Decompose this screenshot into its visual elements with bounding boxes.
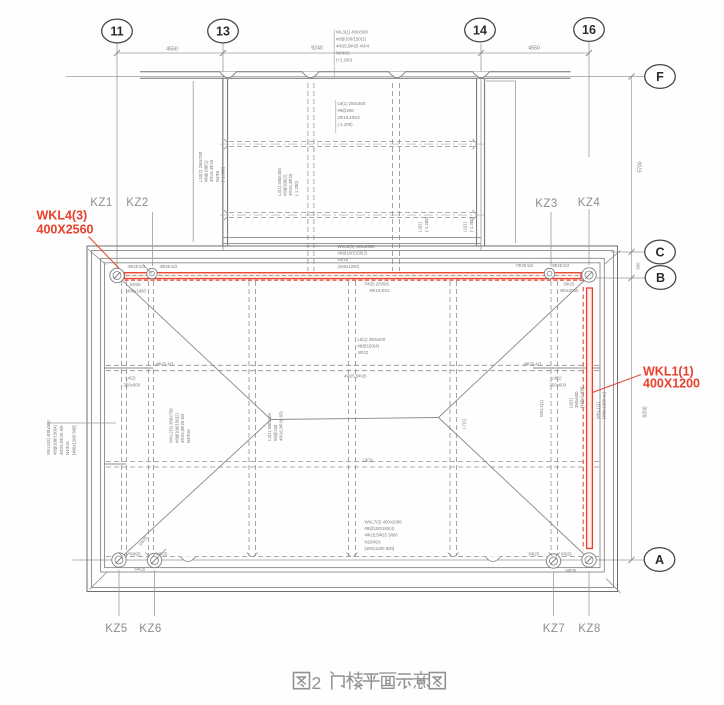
svg-text:16: 16 xyxy=(582,23,596,37)
svg-text:2Φ16,4Φ22: 2Φ16,4Φ22 xyxy=(338,115,361,120)
svg-text:3Φ25 5/2: 3Φ25 5/2 xyxy=(160,264,178,269)
svg-text:4Φ25: 4Φ25 xyxy=(157,552,168,557)
svg-text:N16Φ16: N16Φ16 xyxy=(365,539,382,544)
svg-text:F: F xyxy=(656,70,664,84)
svg-text:11: 11 xyxy=(110,25,123,39)
svg-text:WKL5(3) 400x500: WKL5(3) 400x500 xyxy=(46,420,51,455)
svg-text:KZ1: KZ1 xyxy=(90,197,113,209)
svg-text:L4(1): L4(1) xyxy=(552,376,563,381)
svg-text:4550: 4550 xyxy=(166,47,178,53)
svg-text:(+2.200): (+2.200) xyxy=(336,58,353,63)
svg-text:L10(2) 250x700: L10(2) 250x700 xyxy=(198,151,203,182)
svg-text:4Φ25 5/2: 4Φ25 5/2 xyxy=(552,263,570,268)
svg-text:4Φ25;3Φ25 5/5: 4Φ25;3Φ25 5/5 xyxy=(180,413,185,443)
svg-text:WKL1(1): WKL1(1) xyxy=(596,401,601,419)
svg-text:[400x1200]: [400x1200] xyxy=(580,387,585,408)
svg-text:350x600: 350x600 xyxy=(550,383,567,388)
svg-text:400X2560: 400X2560 xyxy=(37,223,94,237)
svg-text:5Φ25: 5Φ25 xyxy=(130,282,141,287)
svg-text:L8(1): L8(1) xyxy=(569,397,574,408)
svg-text:6Φ25: 6Φ25 xyxy=(529,552,540,557)
svg-text:#8@150: #8@150 xyxy=(273,424,278,441)
svg-text:#8@100/150(2): #8@100/150(2) xyxy=(336,37,366,42)
svg-text:900: 900 xyxy=(636,262,641,270)
svg-text:C: C xyxy=(655,246,664,260)
svg-text:5700: 5700 xyxy=(638,161,644,172)
svg-text:L9(1): L9(1) xyxy=(463,221,468,232)
svg-text:#8@100(2): #8@100(2) xyxy=(283,174,288,196)
svg-text:WKL6(3) 400x2560: WKL6(3) 400x2560 xyxy=(338,244,376,249)
svg-text:6Φ25: 6Φ25 xyxy=(561,552,572,557)
svg-text:7Φ25 2/5/6/6: 7Φ25 2/5/6/6 xyxy=(364,282,390,287)
svg-text:4Φ25,5Φ25: 4Φ25,5Φ25 xyxy=(344,374,367,379)
svg-text:KZ5: KZ5 xyxy=(105,623,128,635)
svg-text:L4(2): L4(2) xyxy=(126,376,137,381)
svg-text:(-1.300): (-1.300) xyxy=(220,166,225,182)
svg-text:KZ2: KZ2 xyxy=(126,197,149,209)
svg-text:WKL4(3): WKL4(3) xyxy=(37,209,88,223)
svg-text:9240: 9240 xyxy=(311,46,323,52)
svg-text:8Φ16,Φ12: 8Φ16,Φ12 xyxy=(370,288,391,293)
svg-text:#8@100/150(4): #8@100/150(4) xyxy=(52,425,57,455)
svg-text:L5(2): L5(2) xyxy=(363,458,374,463)
svg-text:(-1.200): (-1.200) xyxy=(338,122,354,127)
svg-text:WKL2(3) 350x750: WKL2(3) 350x750 xyxy=(169,408,174,443)
svg-text:N4Φ16: N4Φ16 xyxy=(186,429,191,443)
svg-text:A: A xyxy=(655,553,664,567)
svg-text:L3(1) 250x400: L3(1) 250x400 xyxy=(277,168,282,196)
svg-text:KZ6: KZ6 xyxy=(139,623,162,635)
svg-text:350x600: 350x600 xyxy=(574,391,579,408)
svg-text:4Φ25,5Φ25 4/4/4: 4Φ25,5Φ25 4/4/4 xyxy=(336,44,370,49)
svg-text:L7(1): L7(1) xyxy=(462,418,467,429)
svg-text:5Φ25: 5Φ25 xyxy=(564,282,575,287)
svg-text:400x2060: 400x2060 xyxy=(560,288,579,293)
svg-text:4Φ22: 4Φ22 xyxy=(358,350,369,355)
svg-text:400X1200: 400X1200 xyxy=(643,377,700,391)
svg-text:L6(1) 250x400: L6(1) 250x400 xyxy=(338,101,366,106)
svg-text:400x1860: 400x1860 xyxy=(127,289,146,294)
svg-text:9200: 9200 xyxy=(643,406,649,417)
svg-text:[400x1200 500]: [400x1200 500] xyxy=(72,425,77,455)
svg-text:[400x1200 xx]: [400x1200 xx] xyxy=(602,392,607,419)
svg-text:7Φ25 5/2: 7Φ25 5/2 xyxy=(516,263,534,268)
svg-text:14: 14 xyxy=(473,24,487,38)
svg-text:KZ4: KZ4 xyxy=(578,197,601,209)
svg-text:2: 2 xyxy=(312,673,322,693)
svg-text:N4Φ16: N4Φ16 xyxy=(65,441,70,455)
svg-text:#8@100/150(2): #8@100/150(2) xyxy=(174,413,179,443)
svg-text:4Φ25 4/2: 4Φ25 4/2 xyxy=(156,362,174,367)
svg-text:L5(1) 250x200: L5(1) 250x200 xyxy=(358,337,386,342)
svg-text:4Φ20 4/2: 4Φ20 4/2 xyxy=(524,362,542,367)
svg-text:#8@100/150(2): #8@100/150(2) xyxy=(338,251,368,256)
svg-text:350x600: 350x600 xyxy=(124,383,141,388)
svg-text:KZ8: KZ8 xyxy=(578,623,601,635)
svg-text:(-1.200): (-1.200) xyxy=(424,216,429,232)
svg-text:5Φ25: 5Φ25 xyxy=(135,567,146,572)
svg-text:KZ3: KZ3 xyxy=(535,198,558,210)
svg-text:(400x1200): (400x1200) xyxy=(338,264,360,269)
svg-text:#8@100/150(4): #8@100/150(4) xyxy=(365,526,395,531)
svg-text:N6Φ16: N6Φ16 xyxy=(336,51,350,56)
svg-text:KZ7: KZ7 xyxy=(543,623,566,635)
svg-text:6Φ25: 6Φ25 xyxy=(130,552,141,557)
svg-text:4Φ25,5Φ25 5/5: 4Φ25,5Φ25 5/5 xyxy=(59,425,64,455)
svg-text:(-1.200): (-1.200) xyxy=(294,180,299,196)
svg-text:L3(1): L3(1) xyxy=(418,221,423,232)
svg-text:(-1.300): (-1.300) xyxy=(469,216,474,232)
svg-text:5Φ25: 5Φ25 xyxy=(566,568,577,573)
svg-text:N4Φ6: N4Φ6 xyxy=(215,170,220,182)
svg-text:WKL3(1): WKL3(1) xyxy=(539,399,544,417)
svg-text:5Φ25: 5Φ25 xyxy=(338,257,349,262)
svg-text:WL3(1) 400x500: WL3(1) 400x500 xyxy=(336,30,368,35)
svg-text:#8@200: #8@200 xyxy=(338,108,355,113)
svg-text:4Φ16,3Φ16 5/3: 4Φ16,3Φ16 5/3 xyxy=(279,411,284,441)
svg-text:4550: 4550 xyxy=(528,46,540,52)
svg-text:B: B xyxy=(656,271,665,285)
svg-text:WKL7(3) 400x2060: WKL7(3) 400x2060 xyxy=(365,520,403,525)
svg-text:[400x1200 500]: [400x1200 500] xyxy=(365,546,395,551)
svg-text:13: 13 xyxy=(216,25,230,39)
svg-text:4Φ16 4Φ16: 4Φ16 4Φ16 xyxy=(209,159,214,182)
svg-text:L3(1) 300x200: L3(1) 300x200 xyxy=(267,413,272,441)
svg-text:#8@100(1): #8@100(1) xyxy=(204,160,209,182)
svg-text:4Φ25;5Φ25 3/6/6: 4Φ25;5Φ25 3/6/6 xyxy=(365,533,399,538)
svg-text:4Φ16,4Φ25: 4Φ16,4Φ25 xyxy=(288,173,293,196)
svg-text:#8@150(4): #8@150(4) xyxy=(358,344,380,349)
